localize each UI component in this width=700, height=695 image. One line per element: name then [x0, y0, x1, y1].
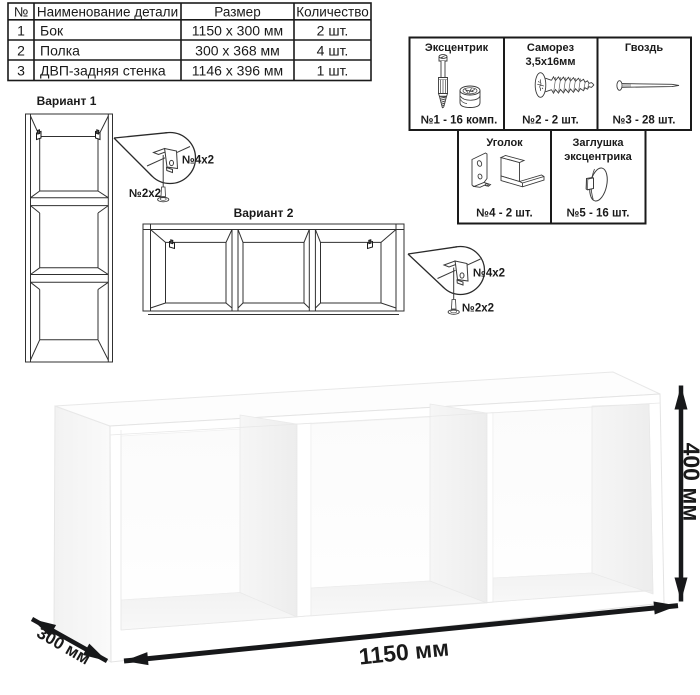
svg-text:Размер: Размер — [214, 5, 260, 20]
svg-text:Гвоздь: Гвоздь — [625, 42, 664, 54]
svg-text:Наименование детали: Наименование детали — [37, 5, 178, 20]
svg-text:№4х2: №4х2 — [182, 155, 214, 167]
svg-text:Бок: Бок — [40, 23, 64, 39]
svg-text:Вариант 1: Вариант 1 — [37, 94, 97, 108]
svg-text:№2х2: №2х2 — [462, 303, 494, 315]
svg-text:4 шт.: 4 шт. — [317, 43, 349, 59]
svg-text:№3 - 28 шт.: №3 - 28 шт. — [613, 115, 676, 127]
svg-text:№2х2: №2х2 — [129, 188, 161, 200]
svg-text:Эксцентрик: Эксцентрик — [425, 42, 489, 54]
svg-text:ДВП-задняя стенка: ДВП-задняя стенка — [40, 63, 166, 79]
svg-text:Вариант 2: Вариант 2 — [234, 206, 294, 220]
svg-text:300 х 368 мм: 300 х 368 мм — [195, 43, 280, 59]
svg-text:№4 - 2 шт.: №4 - 2 шт. — [476, 208, 532, 220]
svg-text:Саморез: Саморез — [527, 42, 575, 54]
svg-text:1 шт.: 1 шт. — [317, 63, 349, 79]
svg-text:1: 1 — [17, 23, 25, 39]
svg-text:2 шт.: 2 шт. — [317, 23, 349, 39]
svg-text:эксцентрика: эксцентрика — [564, 151, 632, 163]
svg-text:№: № — [14, 5, 28, 20]
svg-text:№1 - 16 комп.: №1 - 16 комп. — [421, 115, 498, 127]
svg-text:2: 2 — [17, 43, 25, 59]
svg-text:400 мм: 400 мм — [679, 443, 700, 522]
svg-text:№2 - 2 шт.: №2 - 2 шт. — [522, 115, 578, 127]
svg-text:Заглушка: Заглушка — [572, 137, 624, 149]
svg-text:3: 3 — [17, 63, 25, 79]
svg-text:Уголок: Уголок — [486, 137, 523, 149]
svg-text:№4х2: №4х2 — [473, 268, 505, 280]
svg-text:№5 - 16 шт.: №5 - 16 шт. — [567, 208, 630, 220]
svg-text:Полка: Полка — [40, 43, 80, 59]
svg-text:Количество: Количество — [296, 5, 369, 20]
svg-text:3,5х16мм: 3,5х16мм — [526, 56, 576, 68]
svg-text:1150 х 300 мм: 1150 х 300 мм — [192, 23, 283, 39]
svg-text:1146 х 396 мм: 1146 х 396 мм — [192, 63, 283, 79]
